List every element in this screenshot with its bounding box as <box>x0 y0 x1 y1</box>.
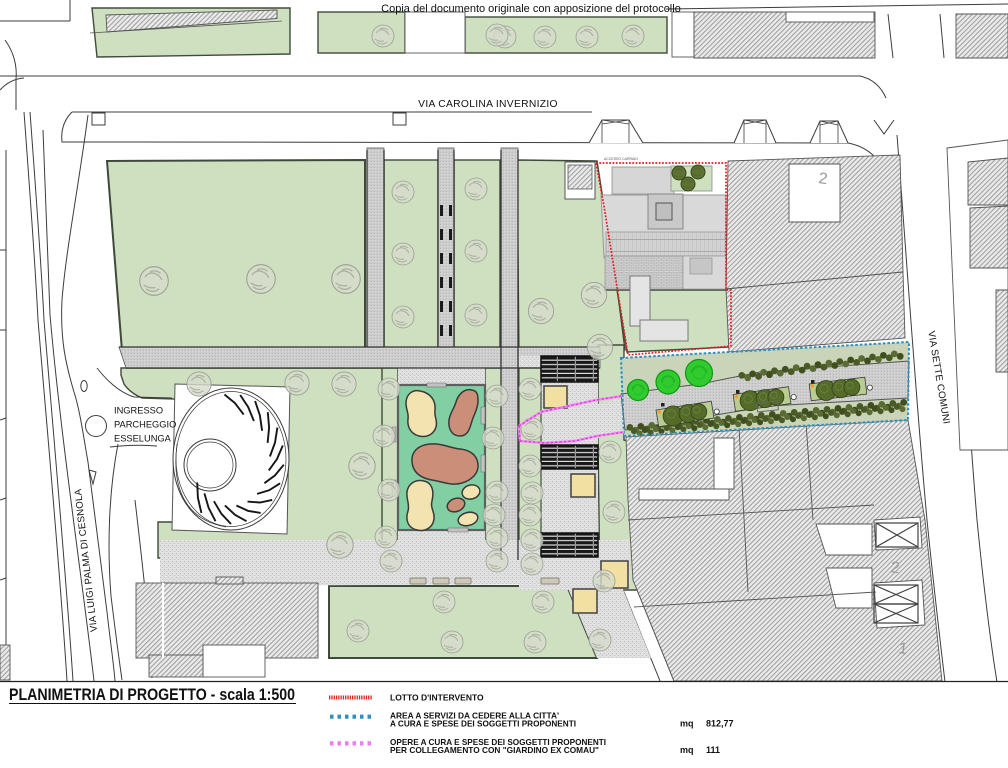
svg-text:812,77: 812,77 <box>706 719 734 729</box>
svg-text:mq: mq <box>680 719 694 729</box>
svg-text:PLANIMETRIA DI PROGETTO - scal: PLANIMETRIA DI PROGETTO - scala 1:500 <box>9 686 295 704</box>
svg-text:ACCESSO CARRAIO: ACCESSO CARRAIO <box>604 157 638 161</box>
svg-text:PER COLLEGAMENTO CON "GIARDINO: PER COLLEGAMENTO CON "GIARDINO EX COMAU" <box>390 745 599 755</box>
svg-text:PARCHEGGIO: PARCHEGGIO <box>114 420 176 430</box>
svg-text:A CURA E SPESE DEI SOGGETTI PR: A CURA E SPESE DEI SOGGETTI PROPONENTI <box>390 719 576 729</box>
svg-text:INGRESSO: INGRESSO <box>114 406 163 416</box>
svg-text:VIA CAROLINA INVERNIZIO: VIA CAROLINA INVERNIZIO <box>418 99 558 110</box>
svg-text:Copia del documento originale: Copia del documento originale con apposi… <box>381 3 681 15</box>
svg-text:111: 111 <box>706 745 720 755</box>
svg-text:mq: mq <box>680 745 694 755</box>
svg-text:ESSELUNGA: ESSELUNGA <box>114 434 172 444</box>
svg-text:LOTTO D'INTERVENTO: LOTTO D'INTERVENTO <box>390 693 484 703</box>
